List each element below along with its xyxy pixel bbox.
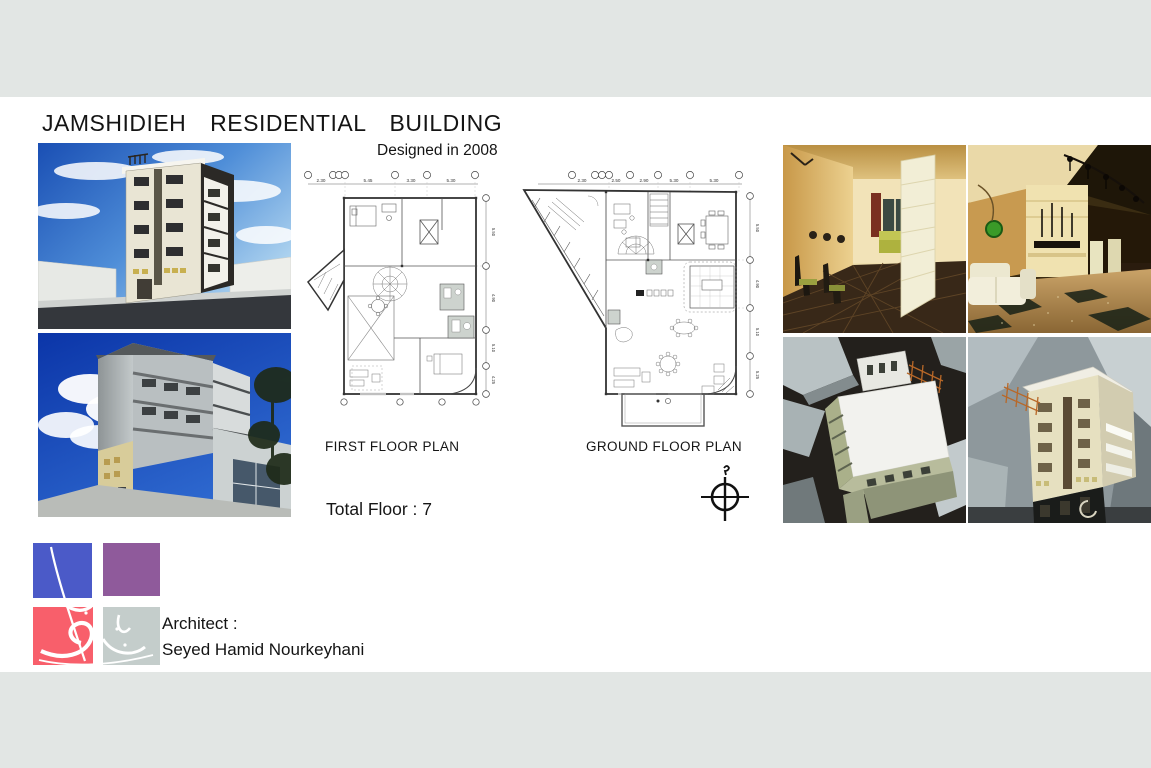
studio-logo bbox=[33, 543, 160, 665]
total-floor-text: Total Floor : 7 bbox=[326, 499, 432, 520]
svg-text:4.90: 4.90 bbox=[755, 280, 760, 289]
first-floor-plan-label: FIRST FLOOR PLAN bbox=[325, 439, 459, 454]
aerial-render-roof-view bbox=[783, 337, 966, 523]
ground-floor-plan-label: GROUND FLOOR PLAN bbox=[586, 439, 742, 454]
svg-text:5.30: 5.30 bbox=[447, 178, 456, 183]
page-subtitle: Designed in 2008 bbox=[377, 142, 498, 160]
svg-text:5.50: 5.50 bbox=[755, 224, 760, 233]
main-building-front bbox=[122, 154, 234, 303]
svg-text:5.50: 5.50 bbox=[491, 228, 496, 237]
ground-floor-plan-drawing: 2.30 2.50 2.90 5.30 5.30 bbox=[518, 168, 766, 428]
partition-wall bbox=[901, 155, 935, 317]
poster-canvas: JAMSHIDIEH RESIDENTIAL BUILDING Designed… bbox=[0, 0, 1151, 768]
bottom-gray-band bbox=[0, 672, 1151, 768]
aerial-render-facade-view bbox=[968, 337, 1151, 523]
exterior-render-street-view bbox=[38, 143, 291, 329]
svg-text:5.10: 5.10 bbox=[491, 344, 496, 353]
first-floor-plan-drawing: 2.30 5.45 3.30 5.30 bbox=[300, 168, 498, 408]
interior-render-living-room bbox=[968, 145, 1151, 333]
svg-text:5.30: 5.30 bbox=[710, 178, 719, 183]
svg-text:5.45: 5.45 bbox=[364, 178, 373, 183]
svg-text:2.50: 2.50 bbox=[612, 178, 621, 183]
architect-label: Architect : bbox=[162, 614, 238, 634]
architect-name: Seyed Hamid Nourkeyhani bbox=[162, 640, 364, 660]
exterior-render-corner-view bbox=[38, 333, 291, 517]
logo-square-purple bbox=[103, 543, 160, 596]
white-sofa bbox=[968, 263, 1036, 305]
north-compass-icon bbox=[700, 464, 750, 524]
svg-text:3.30: 3.30 bbox=[407, 178, 416, 183]
svg-text:2.90: 2.90 bbox=[640, 178, 649, 183]
interior-render-hallway bbox=[783, 145, 966, 333]
svg-text:5.10: 5.10 bbox=[755, 328, 760, 337]
svg-text:5.30: 5.30 bbox=[670, 178, 679, 183]
page-title: JAMSHIDIEH RESIDENTIAL BUILDING bbox=[42, 110, 502, 137]
svg-text:2.30: 2.30 bbox=[578, 178, 587, 183]
svg-text:4.25: 4.25 bbox=[491, 376, 496, 385]
svg-text:5.25: 5.25 bbox=[755, 371, 760, 380]
top-gray-band bbox=[0, 0, 1151, 97]
svg-text:2.30: 2.30 bbox=[317, 178, 326, 183]
svg-text:4.90: 4.90 bbox=[491, 294, 496, 303]
